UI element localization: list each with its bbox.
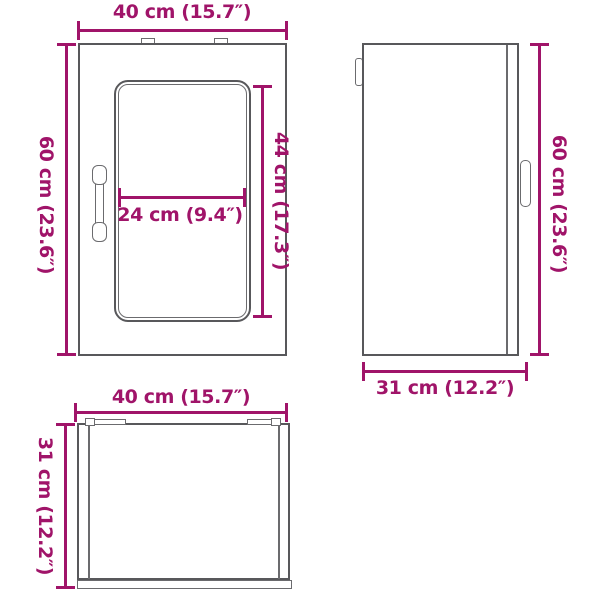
front-glass-window-inner [118,84,247,318]
dim-glass-width-line [118,196,246,199]
dim-top-width-line [74,411,288,414]
top-right-panel-line [278,425,280,579]
top-hinge-plate-left [94,419,126,425]
dim-side-height-line [538,43,541,356]
top-hinge-block-left [85,418,95,426]
top-door-front-strip [77,580,292,589]
dim-front-height-line [65,43,68,356]
dim-top-depth-label: 31 cm (12.2″) [34,437,56,575]
top-left-panel-line [88,425,90,579]
dim-glass-height-label: 44 cm (17.3″) [270,132,292,270]
top-hinge-plate-right [247,419,272,425]
dim-side-depth-line [362,370,528,373]
front-handle-bottom-cap [92,222,107,242]
dim-front-width-label: 40 cm (15.7″) [113,1,251,23]
side-door-panel-line [506,45,508,354]
dim-top-depth-line [64,423,67,589]
dim-side-depth-label: 31 cm (12.2″) [376,377,514,399]
top-cabinet-outline [77,423,290,580]
dim-front-width-line [77,29,288,32]
dim-side-height-label: 60 cm (23.6″) [548,135,570,273]
side-cabinet-outline [362,43,519,356]
dim-top-width-label: 40 cm (15.7″) [112,386,250,408]
top-hinge-block-right [271,418,281,426]
dim-glass-width-label: 24 cm (9.4″) [117,204,242,226]
side-door-handle [520,160,531,207]
dimension-diagram: 40 cm (15.7″) 60 cm (23.6″) 24 cm (9.4″)… [0,0,600,600]
dim-glass-height-line [261,85,264,318]
front-handle-top-cap [92,165,107,185]
dim-front-height-label: 60 cm (23.6″) [35,136,57,274]
